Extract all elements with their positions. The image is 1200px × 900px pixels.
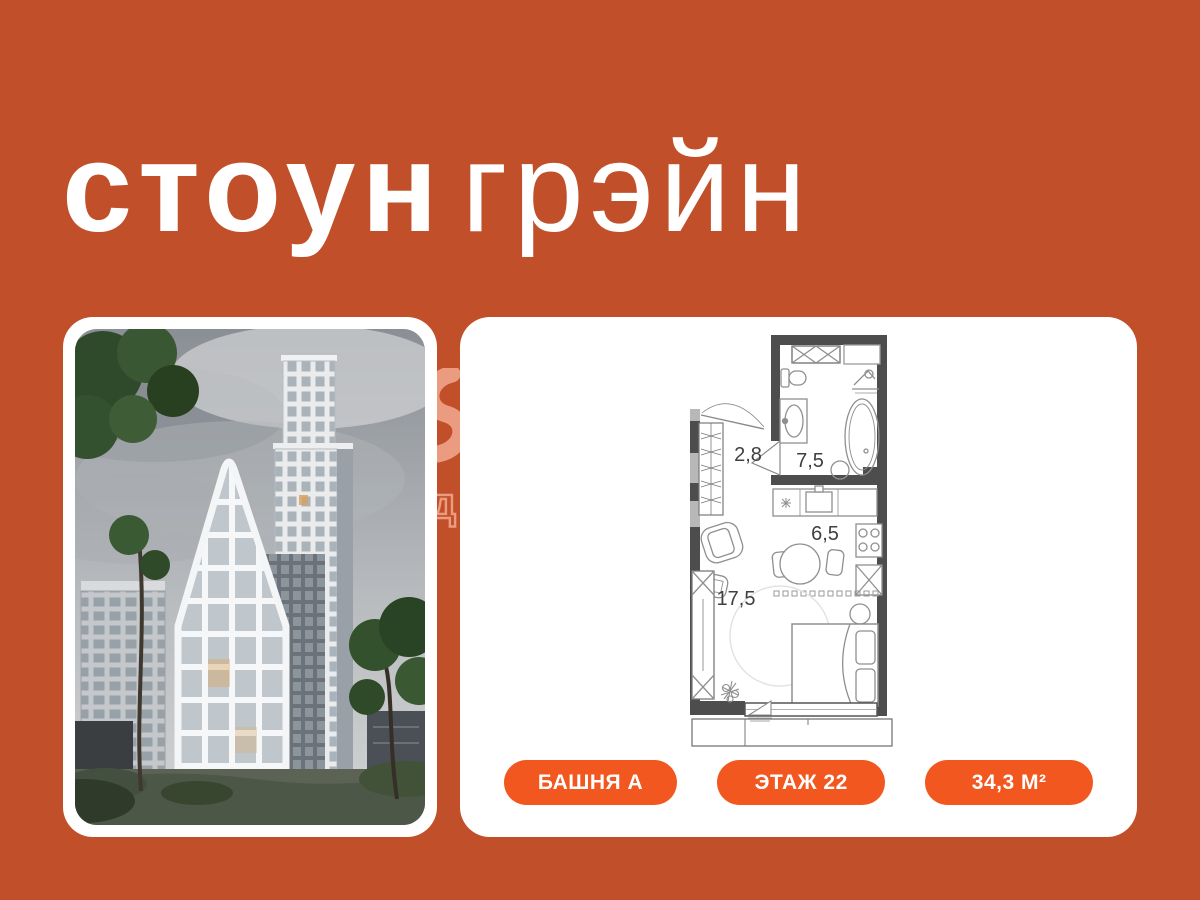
hallway-wardrobe-icon (699, 423, 723, 515)
brand-logo: стоун грэйн (62, 125, 812, 251)
balcony-outline (692, 719, 892, 746)
room-area-label-hallway: 2,8 (734, 444, 762, 466)
sink-icon (780, 399, 807, 443)
wardrobe-column-icon (692, 571, 714, 699)
vent-shaft-icon (792, 346, 840, 363)
building-photo (75, 329, 425, 825)
floor-plan: 2,8 7,5 6,5 17,5 (688, 333, 898, 758)
brand-logo-word-1: стоун (62, 125, 444, 251)
building-photo-illustration (75, 329, 425, 825)
floorplan-card: 2,8 7,5 6,5 17,5 БАШНЯ А ЭТАЖ 22 34,3 М² (460, 317, 1137, 837)
building-photo-card (63, 317, 437, 837)
fridge-symbol (781, 498, 791, 508)
brand-logo-word-2: грэйн (462, 125, 812, 251)
room-area-label-living-room: 17,5 (717, 588, 756, 610)
kitchen-faucet-icon (815, 486, 823, 492)
stove-icon (856, 524, 882, 557)
area-badge[interactable]: 34,3 М² (925, 760, 1093, 805)
wall-niche (844, 345, 880, 364)
kitchen-sink-icon (806, 492, 832, 512)
page-background: стоун грэйн д (0, 0, 1200, 900)
armchair-icon (698, 520, 745, 566)
bedside-table-icon (850, 604, 870, 624)
listing-badges: БАШНЯ А ЭТАЖ 22 34,3 М² (460, 760, 1137, 805)
room-area-label-bathroom: 7,5 (796, 450, 824, 472)
toilet-icon (781, 369, 806, 387)
bed-icon (792, 624, 878, 706)
plant-icon (721, 681, 739, 702)
kitchen-counter-icon (773, 486, 877, 516)
bathtub-icon (845, 399, 879, 475)
bathroom-fixtures (780, 345, 880, 479)
dining-table-icon (772, 544, 845, 584)
room-area-label-kitchen: 6,5 (811, 523, 839, 545)
floor-badge[interactable]: ЭТАЖ 22 (717, 760, 885, 805)
living-room-furniture (692, 520, 878, 706)
tower-badge[interactable]: БАШНЯ А (504, 760, 677, 805)
shower-tap-icon (852, 370, 879, 393)
